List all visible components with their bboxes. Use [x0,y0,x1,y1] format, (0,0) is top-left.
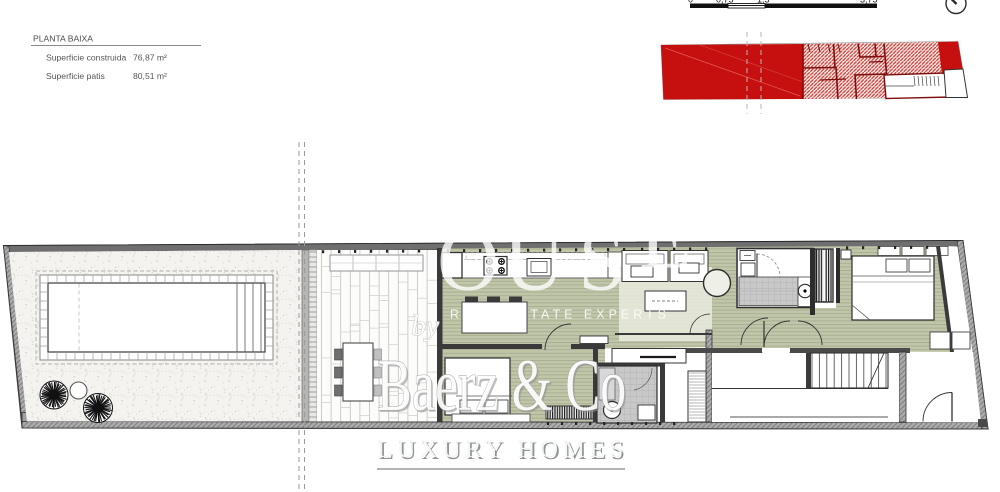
svg-text:0: 0 [688,0,693,5]
svg-text:PLANTA BAIXA: PLANTA BAIXA [33,34,93,44]
svg-text:80,51 m²: 80,51 m² [133,71,167,81]
svg-text:3,75: 3,75 [860,0,878,5]
svg-text:LUXURY HOMES: LUXURY HOMES [377,436,628,463]
svg-text:76,87 m²: 76,87 m² [133,53,167,63]
svg-text:Baerz & Co: Baerz & Co [377,344,626,426]
svg-text:Superficie patis: Superficie patis [46,71,105,81]
svg-text:0,75: 0,75 [716,0,734,5]
svg-text:Superficie construida: Superficie construida [46,53,126,63]
svg-text:1,5: 1,5 [757,0,770,5]
svg-text:REAL ESTATE EXPERTS: REAL ESTATE EXPERTS [450,308,670,322]
svg-text:by: by [411,309,440,342]
